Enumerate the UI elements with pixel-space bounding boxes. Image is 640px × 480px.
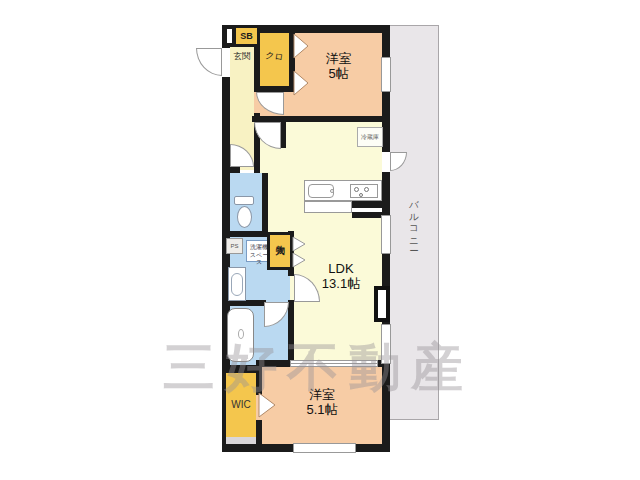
stove-icon	[350, 184, 378, 198]
wall-toilet-top	[230, 167, 240, 173]
bedroom2-size: 5.1帖	[262, 403, 382, 418]
watermark: 三好不動産	[163, 333, 473, 403]
wall-toilet-east	[262, 173, 268, 231]
window-bedroom1	[381, 57, 391, 92]
toilet-tank-icon	[234, 196, 254, 205]
entrance-label: 玄関	[226, 52, 258, 62]
storage-folding-door-icon	[292, 236, 306, 252]
shoe-box-label: SB	[236, 31, 257, 41]
refrigerator-label: 冷蔵庫	[358, 134, 382, 141]
ldk-size: 13.1帖	[300, 277, 382, 292]
kitchen-faucet-icon	[330, 189, 334, 193]
closet-label: クロ	[259, 49, 289, 63]
window-ldk-upper	[381, 215, 391, 254]
bedroom1-size: 5帖	[295, 67, 382, 82]
balcony-label: バルコニー	[408, 194, 419, 247]
floorplan: バルコニー クロ 冷蔵庫	[0, 0, 640, 480]
window-bedroom2	[293, 443, 356, 453]
bedroom1-name: 洋室	[295, 52, 382, 67]
ldk-name: LDK	[300, 262, 382, 277]
pipe-space-box: PS	[226, 238, 243, 254]
closet-floor: クロ	[260, 33, 289, 86]
shoe-box-slot	[227, 29, 232, 43]
refrigerator-box: 冷蔵庫	[357, 127, 383, 147]
toilet-bowl-icon	[237, 206, 252, 228]
wall-wic-east-lower	[256, 420, 262, 444]
wic-step	[226, 437, 256, 444]
door-arc-entrance	[196, 48, 222, 76]
washbasin-icon	[228, 267, 246, 301]
wall-toilet-washroom	[230, 231, 268, 237]
bedroom1-label: 洋室 5帖	[295, 52, 382, 82]
pipe-space-label: PS	[227, 243, 242, 250]
kitchen-lower-counter	[304, 201, 352, 213]
storage-box: 物入	[267, 232, 293, 270]
shoe-box: SB	[236, 28, 257, 44]
kitchen-stub-gap	[352, 208, 382, 212]
balcony-door-opening	[382, 152, 390, 172]
ldk-label: LDK 13.1帖	[300, 262, 382, 292]
